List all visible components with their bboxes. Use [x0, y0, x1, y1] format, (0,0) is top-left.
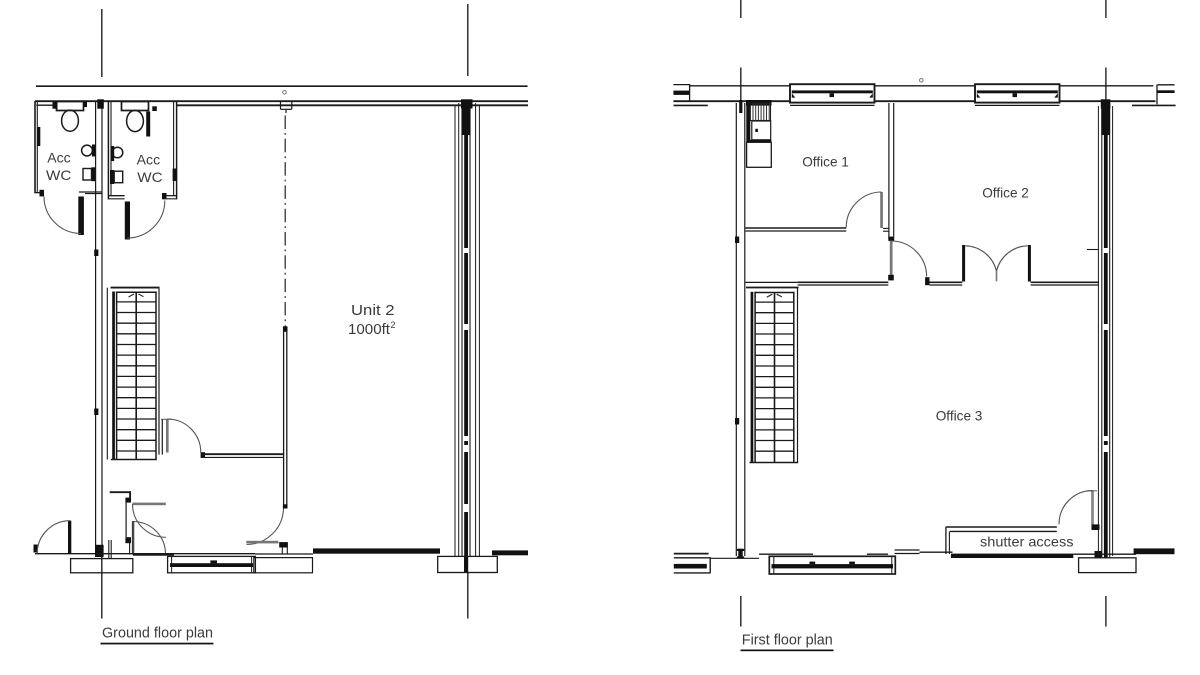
- svg-text:Acc: Acc: [47, 150, 70, 166]
- svg-text:WC: WC: [46, 167, 71, 183]
- svg-text:Office 1: Office 1: [802, 153, 849, 169]
- svg-text:Office 2: Office 2: [982, 185, 1029, 201]
- svg-text:1000ft: 1000ft: [348, 322, 390, 338]
- svg-text:WC: WC: [137, 169, 162, 185]
- svg-text:Office 3: Office 3: [936, 407, 983, 423]
- svg-text:Unit 2: Unit 2: [351, 303, 395, 319]
- svg-text:Acc: Acc: [137, 152, 160, 168]
- svg-text:2: 2: [391, 320, 396, 330]
- svg-text:shutter access: shutter access: [980, 534, 1074, 550]
- svg-text:Ground floor plan: Ground floor plan: [102, 625, 213, 642]
- svg-text:First floor plan: First floor plan: [742, 632, 833, 649]
